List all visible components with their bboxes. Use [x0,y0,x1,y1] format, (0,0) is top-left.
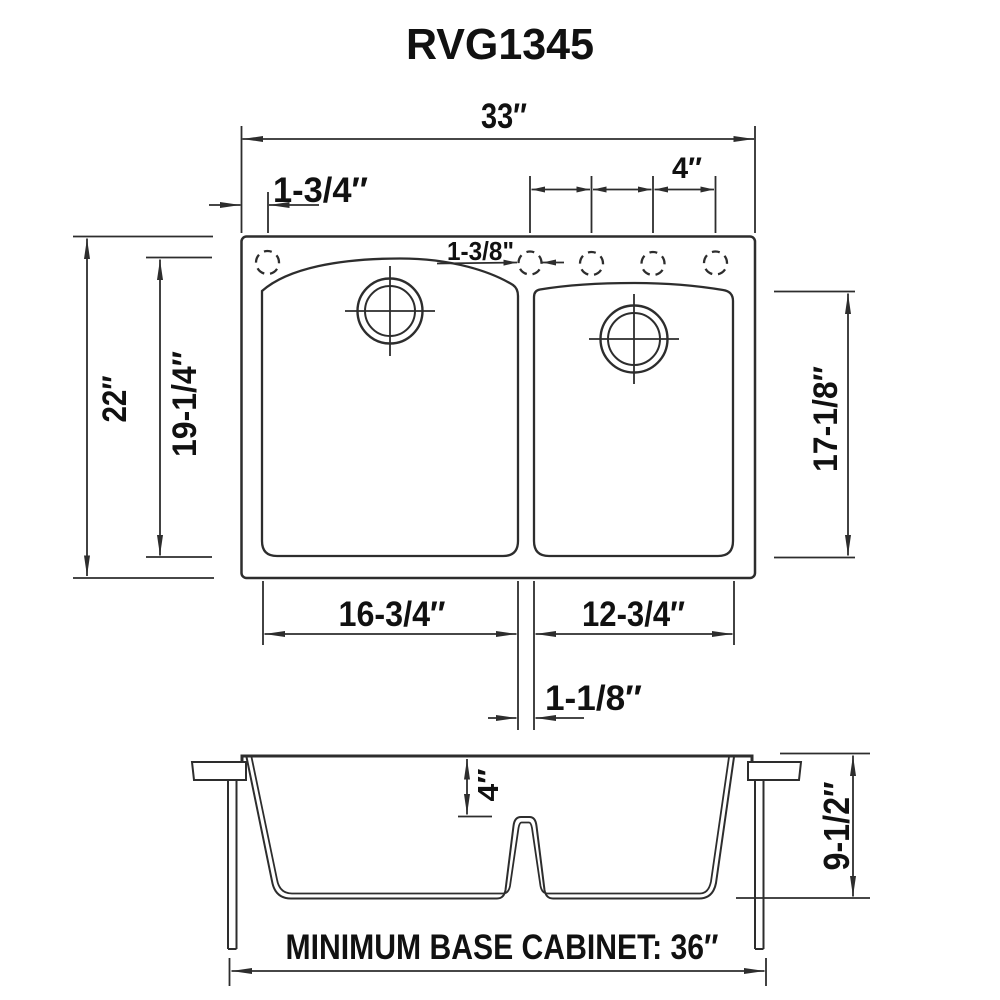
svg-text:4″: 4″ [672,152,702,185]
svg-text:22″: 22″ [96,376,134,423]
svg-text:16-3/4″: 16-3/4″ [339,595,446,634]
svg-text:19-1/4″: 19-1/4″ [166,351,204,457]
svg-text:RVG1345: RVG1345 [406,20,594,69]
svg-text:33″: 33″ [481,97,527,136]
svg-text:9-1/2″: 9-1/2″ [816,782,857,871]
svg-text:17-1/8″: 17-1/8″ [807,366,845,472]
svg-text:1-3/8": 1-3/8" [447,236,514,266]
svg-text:MINIMUM BASE CABINET: 36″: MINIMUM BASE CABINET: 36″ [286,928,719,967]
svg-text:1-1/8″: 1-1/8″ [545,679,642,718]
svg-text:1-3/4″: 1-3/4″ [273,171,368,210]
svg-text:4″: 4″ [473,768,505,801]
svg-text:12-3/4″: 12-3/4″ [582,595,685,634]
